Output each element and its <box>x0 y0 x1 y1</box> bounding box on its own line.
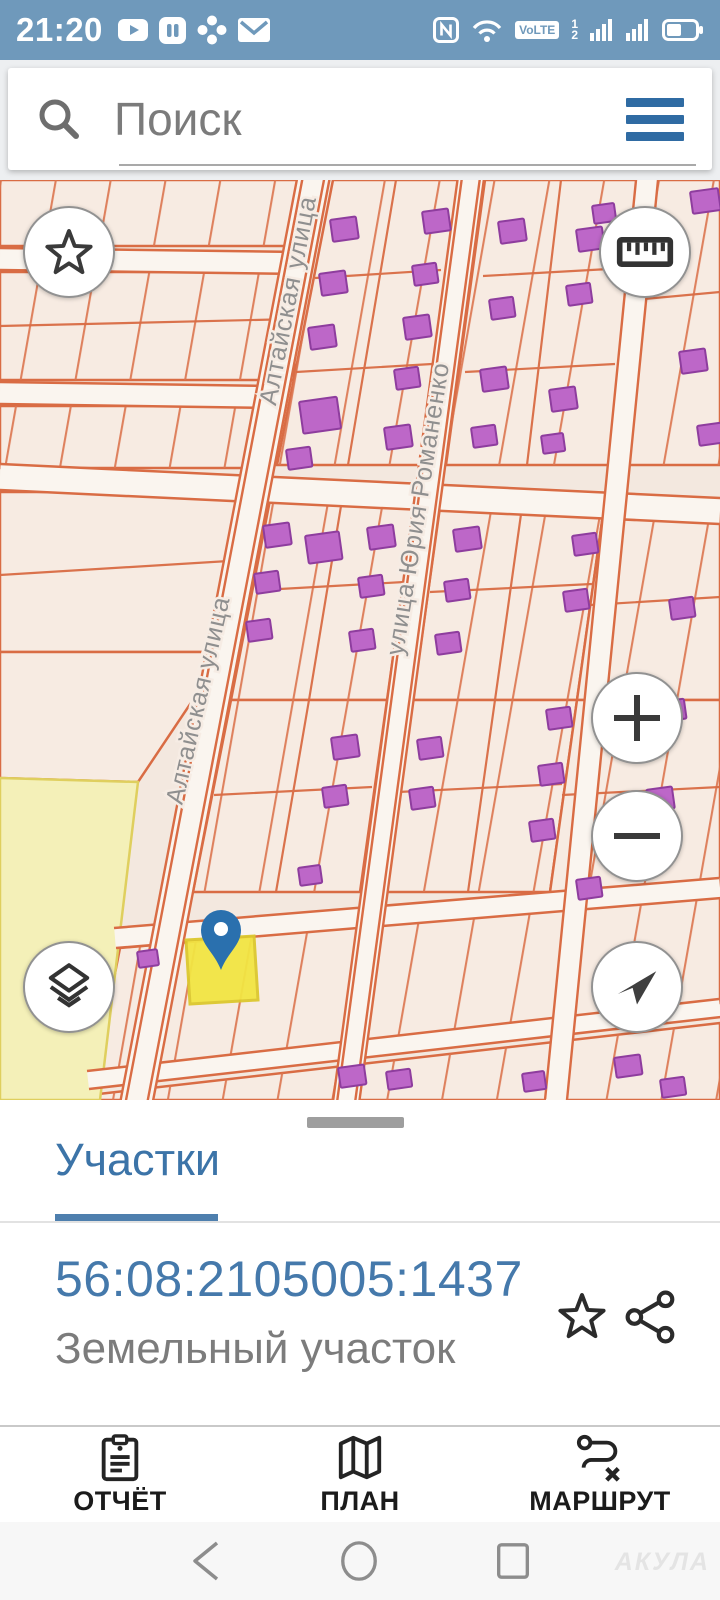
cadastral-number-link[interactable]: 56:08:2105005:1437 <box>55 1250 523 1308</box>
gallery-icon <box>159 17 186 44</box>
clock: 21:20 <box>16 11 103 49</box>
map-icon <box>335 1433 385 1483</box>
locate-button[interactable] <box>591 941 683 1033</box>
favorites-button[interactable] <box>23 206 115 298</box>
parcel-type-label: Земельный участок <box>55 1324 455 1374</box>
route-button[interactable]: МАРШРУТ <box>480 1427 720 1522</box>
plan-label: ПЛАН <box>320 1486 399 1517</box>
menu-button[interactable] <box>626 98 684 141</box>
favorite-parcel-button[interactable] <box>554 1288 610 1349</box>
status-bar: 21:20 VoLTE 1 2 <box>0 0 720 60</box>
wifi-icon <box>471 17 503 43</box>
menu-bar <box>626 98 684 107</box>
menu-bar <box>626 115 684 124</box>
nav-recents-button[interactable] <box>492 1539 534 1583</box>
fan-icon <box>197 15 227 45</box>
search-bar[interactable]: Поиск <box>8 68 712 170</box>
sim2-label: 2 <box>571 30 578 41</box>
battery-icon <box>662 19 704 41</box>
signal-icon-2 <box>626 19 650 41</box>
route-label: МАРШРУТ <box>529 1486 671 1517</box>
tab-parcels[interactable]: Участки <box>55 1134 220 1186</box>
zoom-in-button[interactable] <box>591 672 683 764</box>
search-input[interactable]: Поиск <box>114 92 241 146</box>
share-icon <box>624 1290 678 1344</box>
action-toolbar: ОТЧЁТ ПЛАН МАРШРУТ <box>0 1425 720 1522</box>
share-button[interactable] <box>624 1290 678 1349</box>
nav-back-button[interactable] <box>186 1539 226 1583</box>
layers-button[interactable] <box>23 941 115 1033</box>
route-icon <box>575 1433 625 1483</box>
nav-home-button[interactable] <box>338 1538 380 1584</box>
youtube-icon <box>118 18 148 42</box>
android-nav-bar: АКУЛА <box>0 1522 720 1600</box>
star-icon <box>554 1288 610 1344</box>
clipboard-icon <box>95 1433 145 1483</box>
drag-handle[interactable] <box>307 1117 404 1128</box>
plus-icon <box>609 690 665 746</box>
bottom-sheet: Участки 56:08:2105005:1437 Земельный уча… <box>0 1100 720 1425</box>
layers-icon <box>40 958 98 1016</box>
star-icon <box>41 224 97 280</box>
menu-bar <box>626 132 684 141</box>
ruler-icon <box>615 222 675 282</box>
app-screen: 21:20 VoLTE 1 2 <box>0 0 720 1600</box>
search-icon <box>36 96 82 142</box>
volte-badge: VoLTE <box>515 21 559 39</box>
search-underline <box>119 164 696 166</box>
status-bar-right: VoLTE 1 2 <box>433 17 704 43</box>
signal-icon <box>590 19 614 41</box>
minus-icon <box>609 808 665 864</box>
map-canvas[interactable]: Алтайская улица Алтайская улица улица Юр… <box>0 180 720 1100</box>
sim-indicators: 1 2 <box>571 19 578 41</box>
report-label: ОТЧЁТ <box>73 1486 167 1517</box>
measure-button[interactable] <box>599 206 691 298</box>
location-arrow-icon <box>609 959 665 1015</box>
mail-icon <box>238 18 270 42</box>
divider <box>0 1221 720 1223</box>
active-tab-underline <box>55 1214 218 1221</box>
report-button[interactable]: ОТЧЁТ <box>0 1427 240 1522</box>
nfc-icon <box>433 17 459 43</box>
watermark: АКУЛА <box>615 1548 710 1577</box>
plan-button[interactable]: ПЛАН <box>240 1427 480 1522</box>
zoom-out-button[interactable] <box>591 790 683 882</box>
